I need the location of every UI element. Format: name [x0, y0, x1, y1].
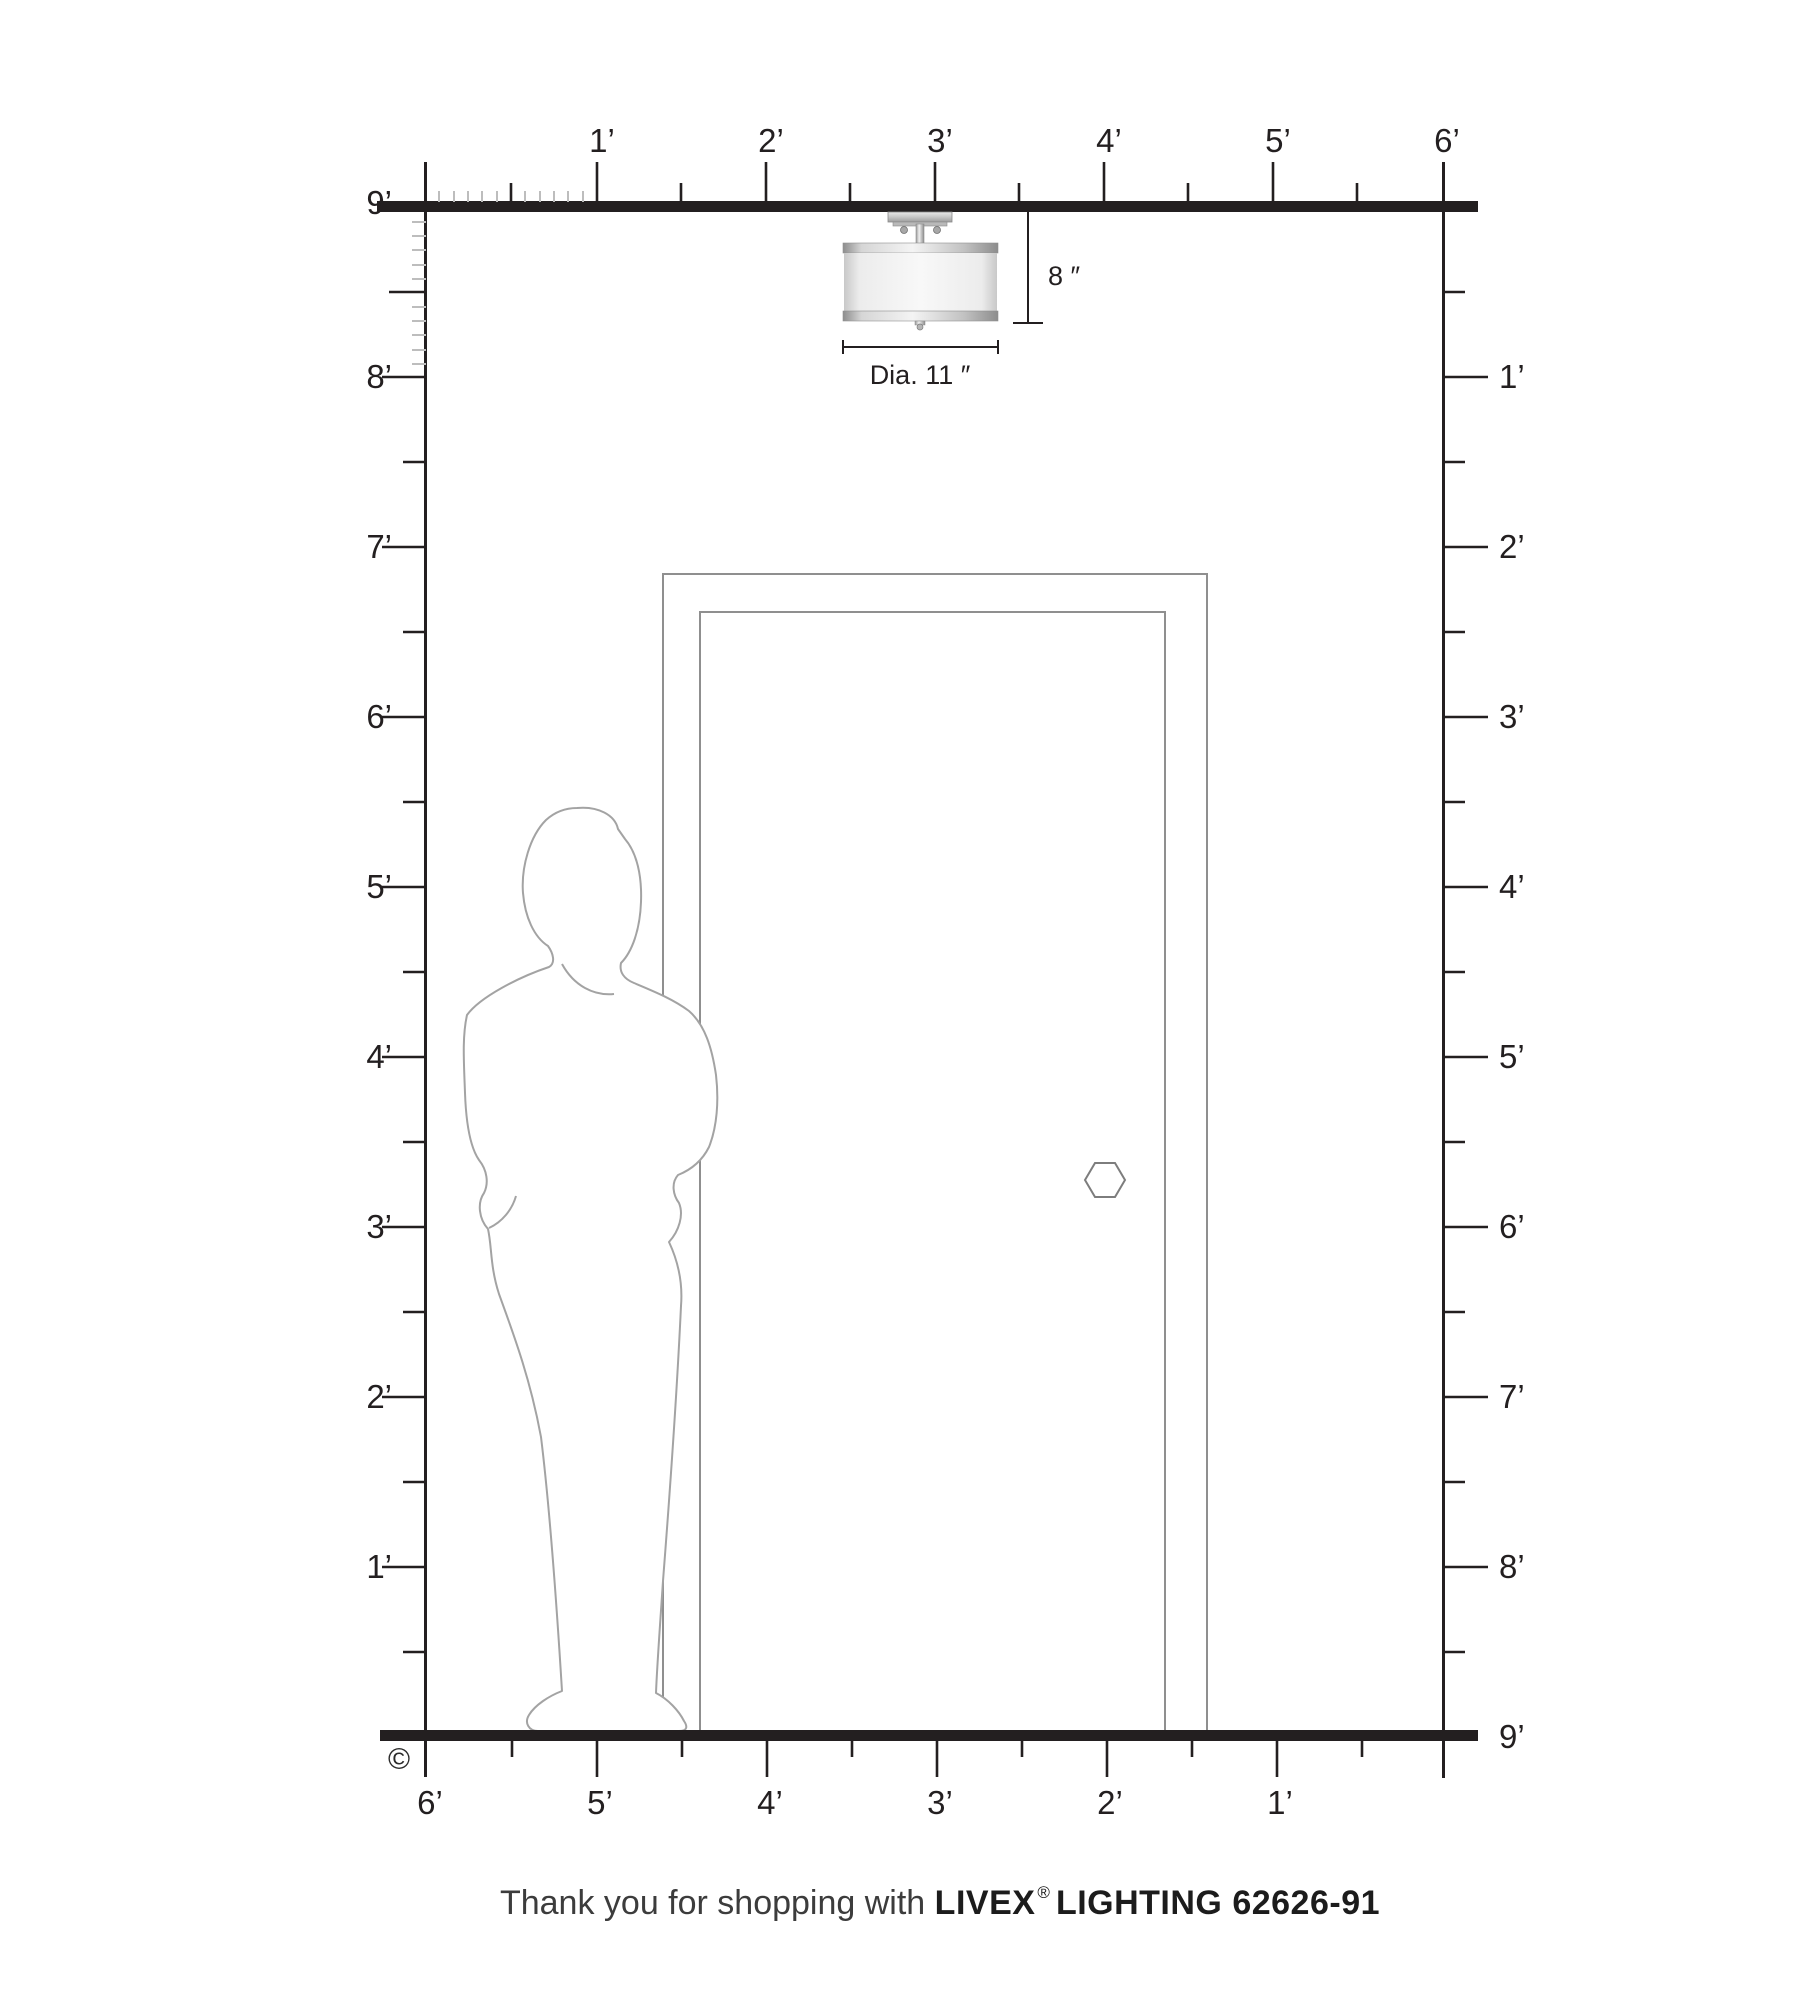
floor-bar [380, 1730, 1478, 1741]
bottom-ruler-label-4ft: 4’ [730, 1786, 810, 1819]
bottom-ruler-label-3ft: 3’ [900, 1786, 980, 1819]
left-ruler-label-4ft: 4’ [312, 1040, 392, 1073]
drum-shade-bottom-band [843, 311, 998, 321]
height-dimension-line [1013, 211, 1043, 323]
right-ruler-label-4ft: 4’ [1499, 870, 1579, 903]
diameter-dimension-label: Dia. 11 ″ [830, 362, 1010, 389]
fixture-finial [917, 324, 923, 330]
right-ruler-label-8ft: 8’ [1499, 1550, 1579, 1583]
top-ruler-label-2ft: 2’ [731, 124, 811, 157]
top-ruler-label-4ft: 4’ [1069, 124, 1149, 157]
left-ruler-label-6ft: 6’ [312, 700, 392, 733]
scale-diagram-page: 8 ″ Dia. 11 ″ © Thank you for shopping w… [0, 0, 1819, 2000]
door-knob [1085, 1163, 1125, 1197]
right-ruler-label-3ft: 3’ [1499, 700, 1579, 733]
bottom-ruler-label-1ft: 1’ [1240, 1786, 1320, 1819]
right-ruler-label-9ft: 9’ [1499, 1720, 1579, 1753]
door [663, 574, 1207, 1732]
ceiling-light-fixture [843, 212, 998, 330]
right-ruler-label-2ft: 2’ [1499, 530, 1579, 563]
right-ruler-label-5ft: 5’ [1499, 1040, 1579, 1073]
ceiling-bar [377, 201, 1478, 212]
left-ruler-label-7ft: 7’ [312, 530, 392, 563]
ruler-ticks-minor [412, 191, 583, 364]
fixture-screw-right [934, 227, 941, 234]
top-ruler-label-1ft: 1’ [562, 124, 642, 157]
left-ruler-label-8ft: 8’ [312, 360, 392, 393]
footer-product-number: LIGHTING 62626-91 [1056, 1884, 1380, 1922]
footer-text: Thank you for shopping with LIVEX®LIGHTI… [330, 1872, 1550, 1924]
top-ruler-label-3ft: 3’ [900, 124, 980, 157]
right-ruler-label-7ft: 7’ [1499, 1380, 1579, 1413]
left-ruler-label-1ft: 1’ [312, 1550, 392, 1583]
drum-shade-top-band [843, 243, 998, 253]
left-wall-ruler-line [424, 162, 427, 1777]
left-ruler-label-5ft: 5’ [312, 870, 392, 903]
diameter-dimension-line [843, 340, 998, 354]
right-ruler-label-1ft: 1’ [1499, 360, 1579, 393]
right-wall-ruler-line [1442, 162, 1445, 1778]
bottom-ruler-label-2ft: 2’ [1070, 1786, 1150, 1819]
left-ruler-label-2ft: 2’ [312, 1380, 392, 1413]
bottom-ruler-label-6ft: 6’ [390, 1786, 470, 1819]
left-ruler-label-3ft: 3’ [312, 1210, 392, 1243]
diagram-canvas [0, 0, 1819, 2000]
footer-brand-name: LIVEX [935, 1884, 1036, 1922]
bottom-ruler-label-5ft: 5’ [560, 1786, 640, 1819]
copyright-symbol: © [382, 1743, 416, 1777]
fixture-canopy [888, 212, 952, 222]
left-ruler-label-9ft: 9’ [312, 186, 392, 219]
drum-shade-body [844, 253, 997, 311]
footer-thanks-text: Thank you for shopping with [500, 1884, 935, 1922]
registered-trademark-symbol: ® [1037, 1883, 1050, 1902]
right-ruler-label-6ft: 6’ [1499, 1210, 1579, 1243]
top-ruler-label-6ft: 6’ [1407, 124, 1487, 157]
fixture-stem [916, 224, 924, 246]
height-dimension-label: 8 ″ [1048, 263, 1080, 290]
top-ruler-label-5ft: 5’ [1238, 124, 1318, 157]
fixture-screw-left [901, 227, 908, 234]
